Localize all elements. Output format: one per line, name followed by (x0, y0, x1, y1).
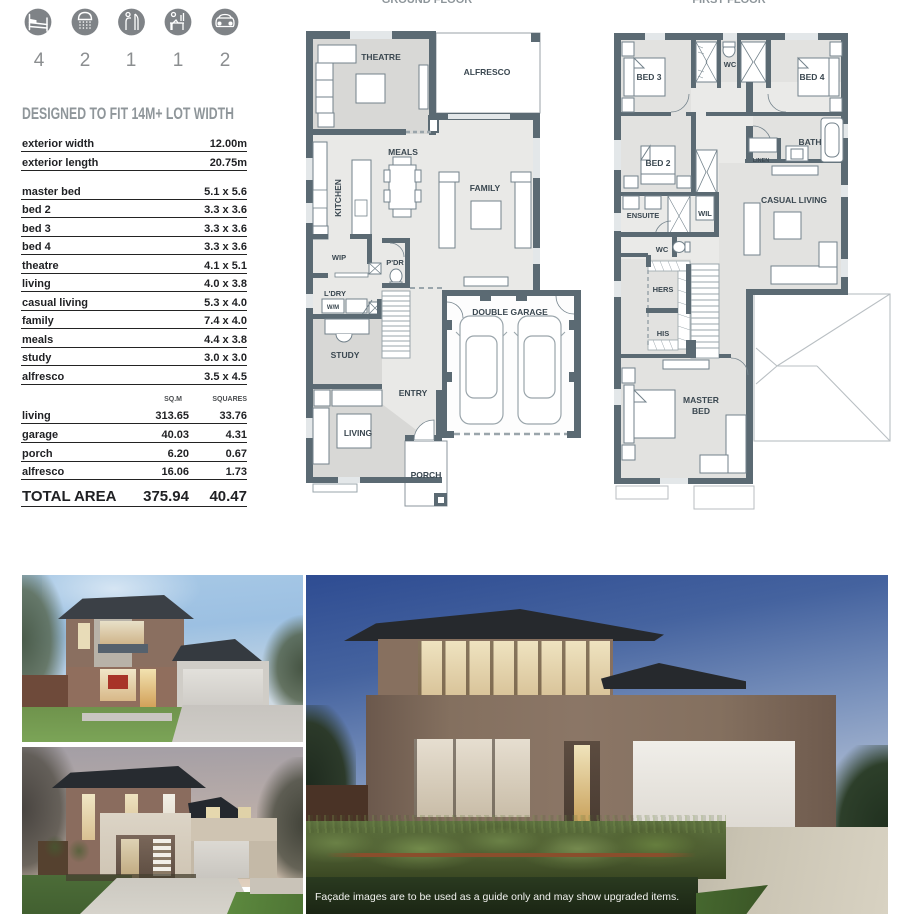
svg-text:KITCHEN: KITCHEN (333, 179, 343, 217)
svg-text:W/M: W/M (327, 305, 339, 311)
svg-text:STUDY: STUDY (331, 350, 360, 360)
svg-text:P'DR: P'DR (386, 258, 404, 267)
svg-text:PORCH: PORCH (411, 470, 442, 480)
svg-text:LINEN: LINEN (753, 158, 770, 164)
svg-text:HERS: HERS (653, 285, 674, 294)
svg-text:BED 2: BED 2 (645, 158, 670, 168)
svg-text:ALFRESCO: ALFRESCO (464, 67, 511, 77)
svg-text:MEALS: MEALS (388, 147, 418, 157)
svg-text:L'DRY: L'DRY (324, 289, 346, 298)
svg-text:ENSUITE: ENSUITE (627, 211, 660, 220)
svg-text:HIS: HIS (657, 329, 670, 338)
svg-text:BED 4: BED 4 (799, 72, 824, 82)
svg-text:ENTRY: ENTRY (399, 388, 428, 398)
svg-text:WIL: WIL (698, 209, 712, 218)
svg-text:WIP: WIP (332, 253, 346, 262)
svg-text:WC: WC (724, 60, 737, 69)
svg-text:THEATRE: THEATRE (361, 52, 401, 62)
svg-text:FAMILY: FAMILY (470, 183, 501, 193)
svg-text:BATH: BATH (799, 137, 822, 147)
svg-text:DOUBLE GARAGE: DOUBLE GARAGE (472, 307, 548, 317)
svg-text:LIVING: LIVING (344, 428, 373, 438)
svg-text:BED 3: BED 3 (636, 72, 661, 82)
svg-text:MASTER: MASTER (683, 395, 719, 405)
svg-text:CASUAL LIVING: CASUAL LIVING (761, 195, 827, 205)
svg-text:WC: WC (656, 245, 669, 254)
svg-text:BED: BED (692, 406, 710, 416)
